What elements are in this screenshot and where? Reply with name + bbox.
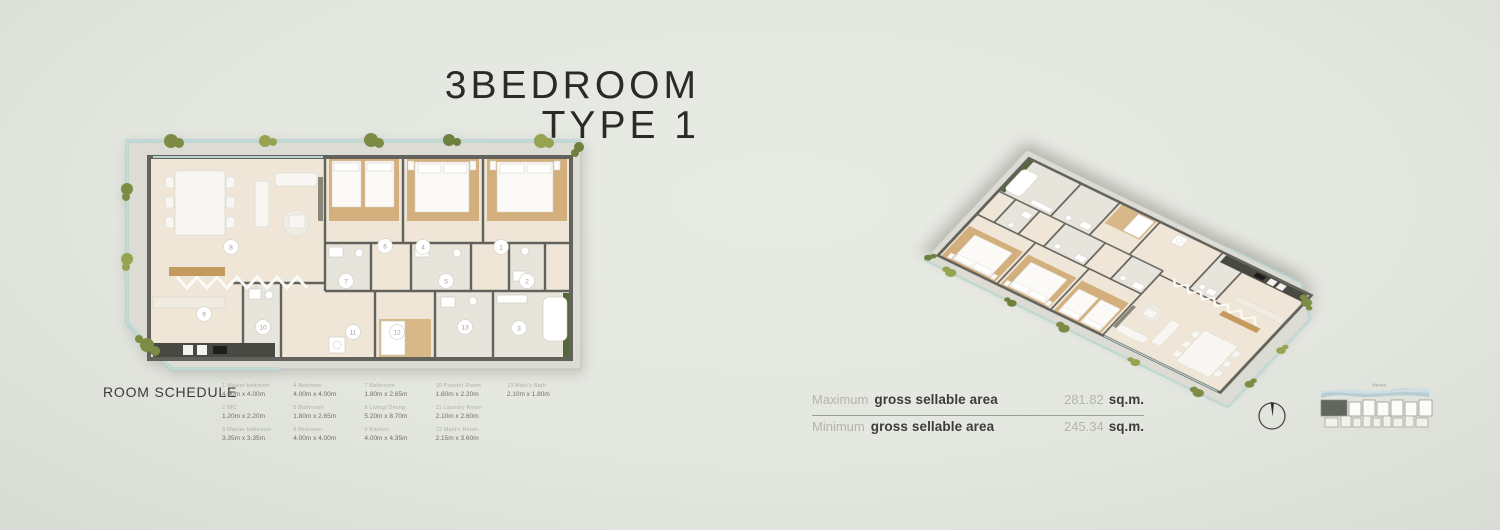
room-dimensions: 4.00m x 4.00m	[293, 435, 358, 442]
room-dimensions: 1.80m x 2.65m	[293, 413, 358, 420]
room-dimensions: 2.10m x 1.80m	[507, 391, 572, 398]
room-marker-number: 4	[421, 244, 425, 251]
room-dimensions: 3.35m x 3.35m	[222, 435, 287, 442]
min-area-row: Minimum gross sellable area 245.34 sq.m.	[812, 419, 1144, 440]
room-dimensions: 4.00m x 4.35m	[364, 435, 429, 442]
room-schedule-cell: 3 Master bathroom3.35m x 3.35m	[222, 427, 287, 442]
room-schedule-cell: 11 Laundry Room2.10m x 2.60m	[436, 405, 501, 420]
room-schedule-column: 1 Master bedroom4.00m x 4.00m2 WC1.20m x…	[222, 383, 287, 442]
min-area-label: gross sellable area	[871, 419, 994, 434]
keymap-highlighted-unit	[1321, 400, 1347, 416]
max-area-qualifier: Maximum	[812, 392, 868, 407]
max-area-unit: sq.m.	[1109, 392, 1144, 407]
max-area-label: gross sellable area	[874, 392, 997, 407]
room-dimensions: 2.10m x 2.60m	[436, 413, 501, 420]
room-name: 11 Laundry Room	[436, 405, 501, 412]
room-marker-number: 6	[383, 243, 387, 250]
floor-plan-2d: 89101112133214567	[113, 131, 597, 385]
room-name: 5 Bathroom	[293, 405, 358, 412]
area-divider	[812, 415, 1144, 416]
max-area-row: Maximum gross sellable area 281.82 sq.m.	[812, 392, 1144, 413]
room-marker-number: 5	[444, 278, 448, 285]
room-schedule-cell: 12 Maid's Room2.15m x 3.60m	[436, 427, 501, 442]
room-dimensions: 2.15m x 3.60m	[436, 435, 501, 442]
room-name: 3 Master bathroom	[222, 427, 287, 434]
room-schedule-cell: 6 Bedroom4.00m x 4.00m	[293, 427, 358, 442]
north-compass-icon	[1251, 394, 1293, 436]
room-schedule-cell: 5 Bathroom1.80m x 2.65m	[293, 405, 358, 420]
plan-title-line1: 3BEDROOM	[380, 66, 700, 106]
floor-plan-3d-svg	[908, 137, 1349, 418]
room-dimensions: 1.20m x 2.20m	[222, 413, 287, 420]
min-area-qualifier: Minimum	[812, 419, 865, 434]
room-schedule-cell: 8 Living/ Dining5.20m x 8.70m	[364, 405, 429, 420]
room-schedule-heading: ROOM SCHEDULE	[103, 384, 237, 400]
room-schedule-cell: 2 WC1.20m x 2.20m	[222, 405, 287, 420]
floor-plan-2d-svg: 89101112133214567	[113, 131, 597, 385]
room-schedule-cell: 9 Kitchen4.00m x 4.35m	[364, 427, 429, 442]
room-schedule-cell: 10 Powder Room1.60m x 2.20m	[436, 383, 501, 398]
min-area-unit: sq.m.	[1109, 419, 1144, 434]
room-schedule-cell: 1 Master bedroom4.00m x 4.00m	[222, 383, 287, 398]
room-name: 1 Master bedroom	[222, 383, 287, 390]
room-marker-number: 13	[461, 324, 469, 331]
min-area-value: 245.34	[1064, 419, 1104, 434]
room-name: 12 Maid's Room	[436, 427, 501, 434]
max-area-value: 281.82	[1064, 392, 1104, 407]
room-name: 7 Bathroom	[364, 383, 429, 390]
room-marker-number: 11	[350, 329, 357, 336]
room-marker-number: 8	[229, 244, 233, 251]
room-marker-number: 2	[525, 278, 529, 285]
room-schedule-cell: 4 Bedroom4.00m x 4.00m	[293, 383, 358, 398]
room-dimensions: 4.00m x 4.00m	[222, 391, 287, 398]
room-schedule-cell: 7 Bathroom1.80m x 2.65m	[364, 383, 429, 398]
room-marker-number: 10	[259, 324, 267, 331]
room-schedule-grid: 1 Master bedroom4.00m x 4.00m2 WC1.20m x…	[222, 383, 572, 442]
room-dimensions: 1.80m x 2.65m	[364, 391, 429, 398]
room-name: 10 Powder Room	[436, 383, 501, 390]
key-plan: Marina	[1317, 381, 1436, 435]
room-name: 13 Maid's Bath	[507, 383, 572, 390]
room-name: 8 Living/ Dining	[364, 405, 429, 412]
room-schedule-column: 10 Powder Room1.60m x 2.20m11 Laundry Ro…	[436, 383, 501, 442]
room-dimensions: 4.00m x 4.00m	[293, 391, 358, 398]
room-name: 9 Kitchen	[364, 427, 429, 434]
room-schedule-column: 4 Bedroom4.00m x 4.00m5 Bathroom1.80m x …	[293, 383, 358, 442]
room-schedule-column: 13 Maid's Bath2.10m x 1.80m	[507, 383, 572, 442]
room-marker-number: 12	[393, 329, 401, 336]
keymap-location-label: Marina	[1372, 383, 1386, 388]
room-marker-number: 9	[202, 311, 206, 318]
room-schedule-cell: 13 Maid's Bath2.10m x 1.80m	[507, 383, 572, 398]
room-schedule-column: 7 Bathroom1.80m x 2.65m8 Living/ Dining5…	[364, 383, 429, 442]
room-dimensions: 5.20m x 8.70m	[364, 413, 429, 420]
room-dimensions: 1.60m x 2.20m	[436, 391, 501, 398]
room-name: 4 Bedroom	[293, 383, 358, 390]
room-name: 2 WC	[222, 405, 287, 412]
room-marker-number: 1	[499, 244, 503, 251]
room-marker-number: 7	[344, 278, 348, 285]
floor-plan-3d	[908, 137, 1349, 418]
room-marker-number: 3	[517, 325, 521, 332]
room-name: 6 Bedroom	[293, 427, 358, 434]
sellable-area-block: Maximum gross sellable area 281.82 sq.m.…	[812, 392, 1144, 440]
